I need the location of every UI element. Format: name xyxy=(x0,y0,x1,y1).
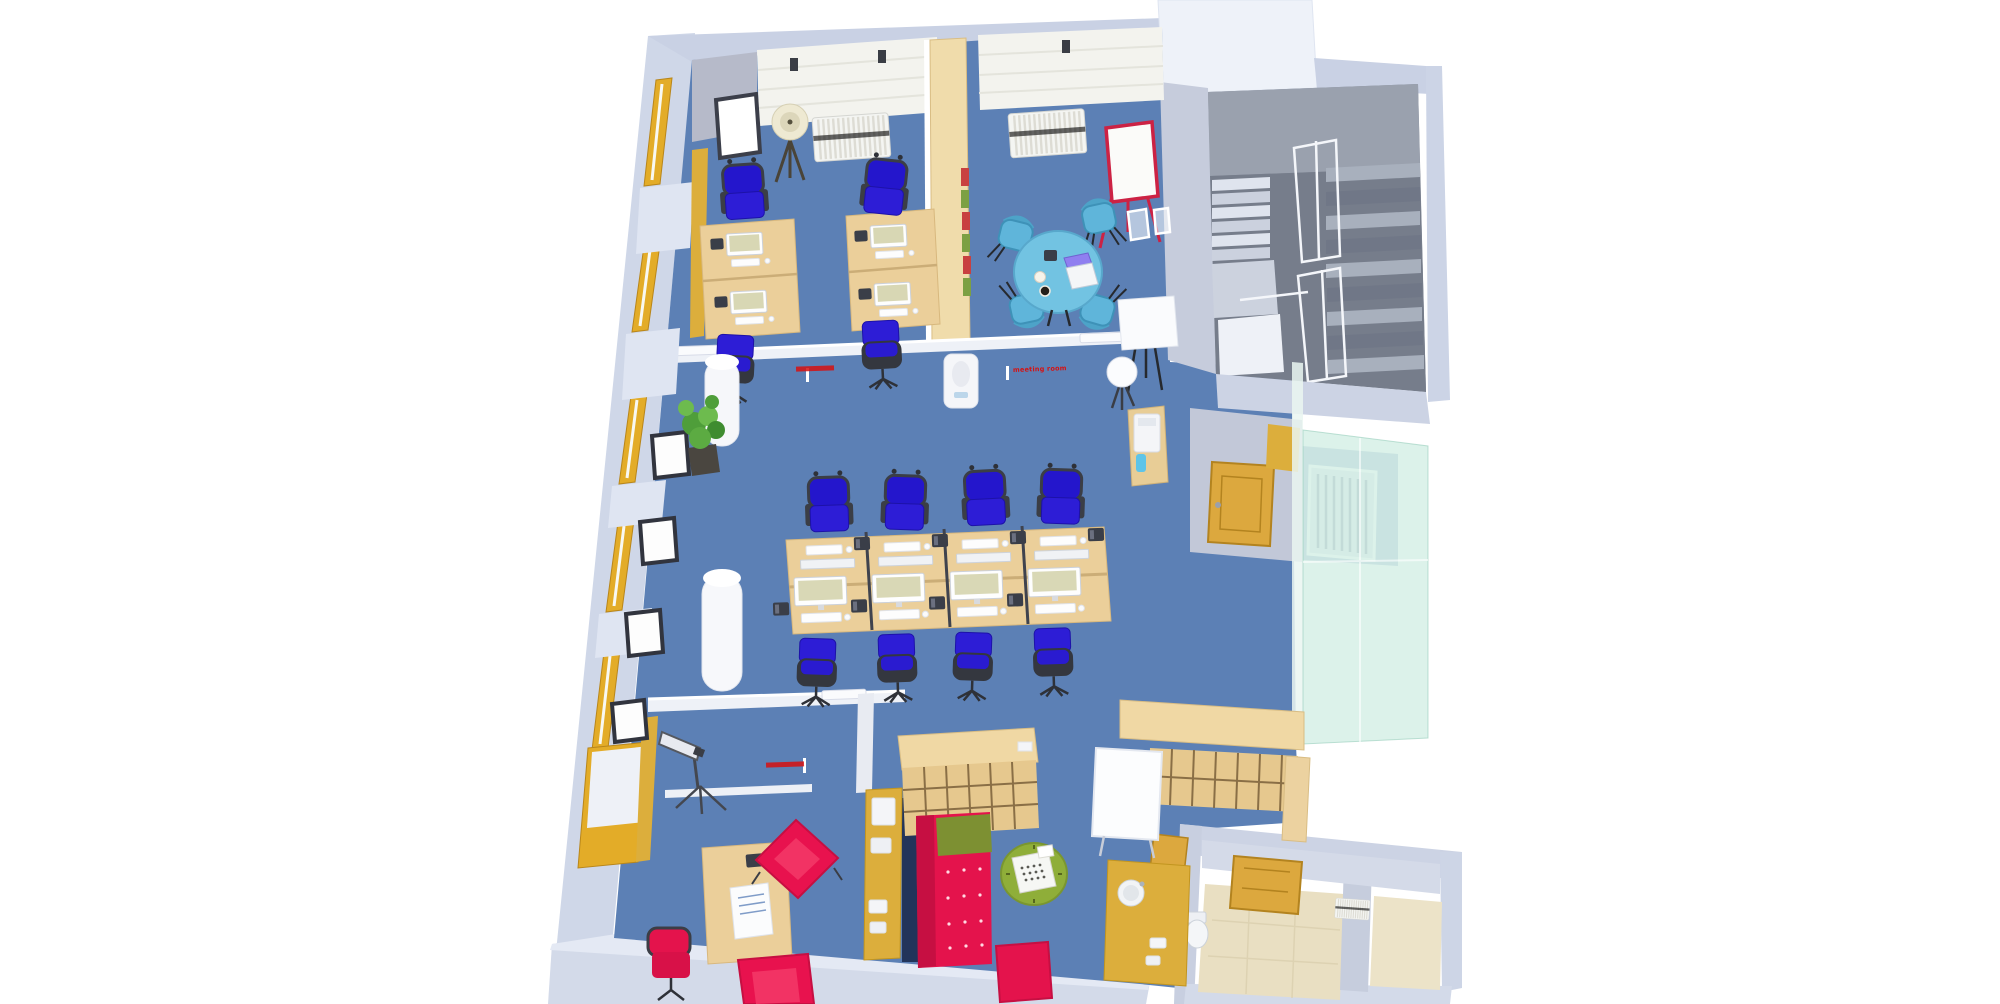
office-radiator xyxy=(812,113,891,162)
kitchenette-counter xyxy=(1104,860,1190,986)
table-phone xyxy=(1044,250,1057,261)
window-pier-2 xyxy=(622,328,680,400)
desk-bank xyxy=(772,526,1111,634)
kitchen-strip xyxy=(864,788,902,960)
open-plan-chair-1 xyxy=(804,470,854,532)
washroom-outer-right xyxy=(1440,852,1462,992)
floorplan-svg: meeting room xyxy=(0,0,2000,1004)
stairwell-door xyxy=(1208,462,1274,546)
window-pier-1 xyxy=(636,182,694,254)
red-armchair-2 xyxy=(738,954,814,1004)
office-desk-pod-a xyxy=(700,219,800,339)
meeting-brick-wall xyxy=(978,27,1164,110)
wall-fixture-2 xyxy=(878,50,886,63)
green-coffee-table xyxy=(1001,843,1067,905)
stair-skylight-patch xyxy=(1218,314,1284,376)
label-post-meeting xyxy=(1006,366,1009,380)
floorplan-canvas: meeting room xyxy=(0,0,2000,1004)
toilet xyxy=(1186,912,1208,948)
stair-landing xyxy=(1212,260,1278,318)
open-plan-chair-4 xyxy=(1036,462,1086,524)
column-2 xyxy=(702,569,742,691)
washroom-door-open xyxy=(1230,856,1302,914)
open-plan-chair-3 xyxy=(960,463,1011,526)
washroom-radiator xyxy=(1335,898,1370,920)
lounge-wall-stub xyxy=(856,693,874,793)
printer-copier xyxy=(944,354,978,408)
stair-back-wall xyxy=(1208,84,1420,176)
red-sofa xyxy=(916,812,992,968)
washrooms xyxy=(1150,824,1462,1004)
side-cabinet xyxy=(1128,406,1168,486)
espresso-cup xyxy=(1040,286,1050,296)
coffee-cup xyxy=(1035,272,1046,283)
stair-outer-right xyxy=(1426,66,1450,402)
open-plan-chair-2 xyxy=(880,468,930,530)
mirror xyxy=(716,94,760,158)
washroom-floor-2 xyxy=(1370,896,1442,990)
roof-block-top-right xyxy=(1158,0,1317,94)
meeting-door-leaf xyxy=(1080,332,1126,343)
office-desk-pod-b xyxy=(846,209,940,331)
glass-box xyxy=(1303,430,1428,744)
red-ottoman xyxy=(996,942,1052,1002)
glass-pane-edge xyxy=(1292,362,1303,744)
wall-fixture-1 xyxy=(790,58,798,71)
meeting-radiator xyxy=(1008,109,1087,158)
wall-fixture-3 xyxy=(1062,40,1070,53)
